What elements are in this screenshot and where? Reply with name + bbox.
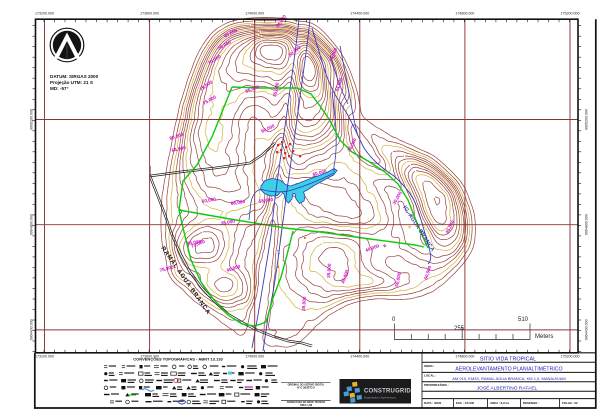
svg-text:CONVENÇÕES TOPOGRÁFICAS -: CONVENÇÕES TOPOGRÁFICAS - ABNT 13.133 [133, 357, 223, 362]
svg-text:174800.000: 174800.000 [455, 355, 474, 359]
svg-text:173600.000: 173600.000 [140, 12, 159, 16]
svg-text:174000.000: 174000.000 [245, 355, 264, 359]
svg-text:9964400.000: 9964400.000 [585, 319, 589, 340]
svg-text:174400.000: 174400.000 [350, 355, 369, 359]
svg-text:AREA : 8,9 ha: AREA : 8,9 ha [490, 401, 509, 405]
svg-text:OBRA :: OBRA : [424, 364, 435, 368]
svg-text:CONSTRUGRID: CONSTRUGRID [364, 389, 411, 395]
svg-text:9964800.000: 9964800.000 [585, 214, 589, 235]
svg-text:SITIO VIDA TROPICAL: SITIO VIDA TROPICAL [480, 356, 536, 362]
svg-text:9964400.000: 9964400.000 [30, 319, 34, 340]
svg-text:173200.000: 173200.000 [35, 355, 54, 359]
svg-text:174400.000: 174400.000 [350, 12, 369, 16]
svg-text:FOLHA : 02: FOLHA : 02 [562, 401, 578, 405]
svg-text:9965200.000: 9965200.000 [585, 109, 589, 130]
svg-text:175200.000: 175200.000 [561, 12, 580, 16]
svg-text:ESC : 1/5.000: ESC : 1/5.000 [456, 401, 475, 405]
svg-text:L 1: L 1 [276, 249, 281, 254]
svg-text:AM 010, KM33, RAMAL AGUA BRANC: AM 010, KM33, RAMAL AGUA BRANCA, KM 1,0,… [452, 376, 565, 381]
svg-text:LOCAL :: LOCAL : [424, 374, 436, 378]
svg-text:255: 255 [454, 326, 465, 332]
svg-text:510: 510 [518, 317, 529, 323]
svg-text:Nº E OBJETO S: Nº E OBJETO S [297, 386, 315, 389]
svg-text:9964800.000: 9964800.000 [30, 214, 34, 235]
svg-text:PROPRIETÁRIO :: PROPRIETÁRIO : [424, 382, 449, 387]
svg-text:173200.000: 173200.000 [35, 12, 54, 16]
svg-text:Projeção UTM: 21 S: Projeção UTM: 21 S [50, 80, 93, 85]
svg-text:35,000: 35,000 [326, 263, 332, 278]
svg-text:174800.000: 174800.000 [455, 12, 474, 16]
svg-text:MD: -57°: MD: -57° [50, 86, 69, 91]
svg-text:DESENHO :: DESENHO : [523, 401, 539, 405]
svg-text:JOSÉ ALBERTINO RAFAEL: JOSÉ ALBERTINO RAFAEL [477, 385, 538, 392]
svg-text:9965200.000: 9965200.000 [30, 109, 34, 130]
svg-text:174000.000: 174000.000 [245, 12, 264, 16]
svg-text:CREA / AM: CREA / AM [300, 404, 312, 407]
svg-text:Engenharia e Agrimensura: Engenharia e Agrimensura [364, 396, 396, 400]
svg-text:Meters: Meters [535, 334, 553, 340]
svg-text:35,000: 35,000 [301, 296, 307, 311]
svg-text:DATA : /2020: DATA : /2020 [424, 401, 442, 405]
svg-text:DATUM: SIRGAS 2000: DATUM: SIRGAS 2000 [50, 74, 99, 79]
svg-text:AEROLEVANTAMENTO PLANIALTIMÉTR: AEROLEVANTAMENTO PLANIALTIMÉTRICO [455, 365, 562, 372]
svg-text:175200.000: 175200.000 [561, 355, 580, 359]
